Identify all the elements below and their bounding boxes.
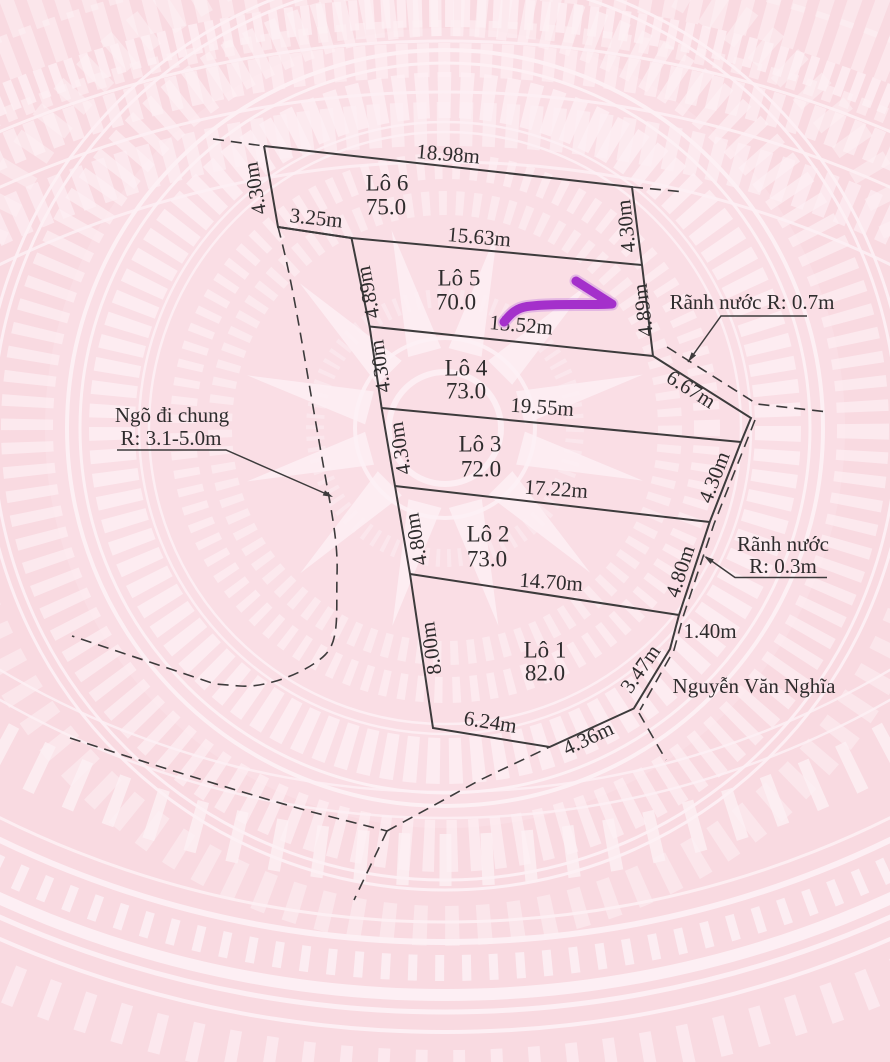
svg-text:17.22m: 17.22m (524, 475, 589, 503)
svg-text:Rãnh nước: Rãnh nước (737, 532, 829, 556)
svg-text:Lô 6: Lô 6 (366, 170, 409, 195)
svg-text:1.40m: 1.40m (683, 619, 736, 643)
svg-text:Rãnh nước R: 0.7m: Rãnh nước R: 0.7m (670, 290, 835, 314)
svg-text:Lô 4: Lô 4 (445, 355, 488, 380)
svg-text:Lô 3: Lô 3 (459, 431, 502, 456)
svg-text:Ngõ đi chung: Ngõ đi chung (115, 403, 230, 427)
svg-text:Lô 5: Lô 5 (438, 265, 481, 290)
svg-text:73.0: 73.0 (446, 378, 486, 403)
svg-text:R: 3.1-5.0m: R: 3.1-5.0m (121, 426, 222, 450)
svg-text:Lô 1: Lô 1 (524, 637, 567, 662)
svg-text:14.70m: 14.70m (519, 568, 584, 596)
svg-text:70.0: 70.0 (436, 289, 476, 314)
svg-text:Nguyễn Văn Nghĩa: Nguyễn Văn Nghĩa (673, 674, 837, 698)
svg-text:73.0: 73.0 (467, 546, 507, 571)
svg-text:72.0: 72.0 (461, 456, 501, 481)
svg-text:Lô 2: Lô 2 (467, 521, 510, 546)
svg-text:75.0: 75.0 (366, 194, 406, 219)
svg-text:82.0: 82.0 (525, 660, 565, 685)
svg-text:19.55m: 19.55m (510, 393, 575, 421)
svg-text:R: 0.3m: R: 0.3m (749, 554, 817, 578)
